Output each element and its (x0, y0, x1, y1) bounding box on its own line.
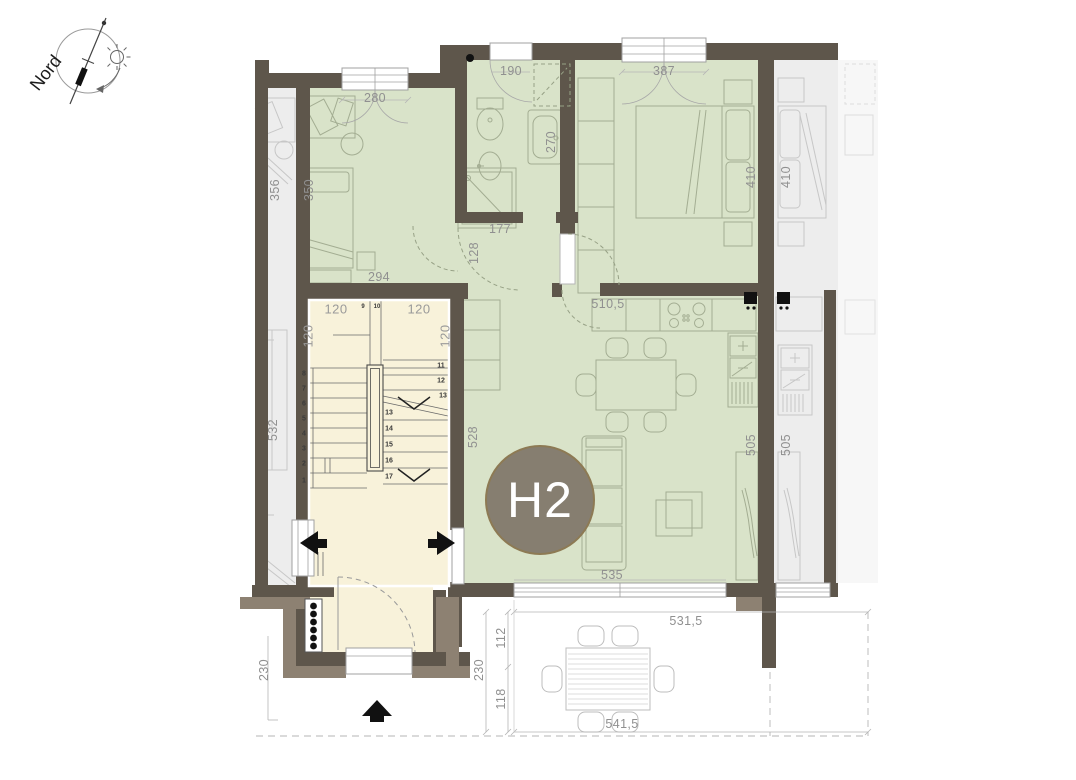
stair-step-number: 16 (385, 458, 393, 465)
stair-step-number: 8 (302, 371, 306, 378)
stove-vent-icon (744, 292, 757, 304)
dim-stair-side-left: 120 (302, 325, 315, 348)
window-neighbor-living (776, 583, 830, 597)
dim-bedroom2-window: 280 (364, 92, 386, 105)
entrance-threshold (346, 648, 412, 674)
stair-step-number: 2 (302, 461, 306, 468)
dim-bathroom-top: 190 (500, 65, 522, 78)
dim-terrace-lower: 118 (495, 688, 508, 709)
stair-step-number: 14 (385, 426, 393, 433)
door-bedroom1 (560, 234, 575, 284)
stair-step-number: 11 (437, 363, 444, 370)
dim-living-depth: 528 (467, 426, 480, 448)
dim-bedroom1-depth: 410 (745, 166, 758, 188)
dim-neighbor-left-depth: 356 (269, 179, 282, 201)
dim-neighbor-left-lower: 532 (267, 419, 280, 441)
dim-sideboard-wall: 505 (745, 434, 758, 456)
dim-stair-side-right: 120 (439, 325, 452, 348)
floor-plan-drawing (0, 0, 1076, 780)
stair-step-number: 15 (385, 442, 393, 449)
dim-bathroom-width: 177 (489, 223, 511, 236)
window-bathroom (490, 43, 532, 60)
stair-step-number: 12 (437, 378, 445, 385)
stair-step-number: 1 (302, 478, 306, 485)
dim-bedroom2-width: 294 (368, 271, 390, 284)
stair-step-number: 9 (361, 304, 364, 310)
entrance-direction-arrow-icon (362, 700, 392, 722)
dim-bedroom1-window: 387 (653, 65, 675, 78)
dim-stair-flight-left: 120 (325, 303, 348, 316)
stair-step-number: 3 (302, 446, 306, 453)
outdoor-chair-icon (578, 626, 604, 646)
dim-bathroom-wall: 270 (545, 131, 558, 153)
stair-step-number: 17 (385, 474, 393, 481)
dim-living-window: 535 (601, 569, 623, 582)
dim-terrace-top: 531,5 (669, 615, 702, 628)
dim-stair-flight-right: 120 (408, 303, 431, 316)
dim-entrance-depth: 230 (258, 659, 271, 681)
door-h2-entry (452, 528, 464, 584)
dim-bedroom2-depth: 350 (303, 179, 316, 201)
unit-badge: H2 (485, 445, 595, 555)
stair-step-number: 5 (302, 416, 306, 423)
stair-step-number: 6 (302, 401, 306, 408)
stair-step-number: 13 (385, 410, 393, 417)
sun-icon (108, 44, 131, 70)
dim-neighbor-sideboard-wall: 505 (780, 434, 793, 456)
vent-dot-icon (466, 54, 474, 62)
dim-living-width: 510,5 (591, 298, 624, 311)
north-compass-icon (56, 18, 131, 104)
dim-terrace-upper: 112 (495, 627, 508, 648)
stair-step-number: 10 (374, 304, 381, 310)
mailbox-icon (305, 599, 322, 652)
dim-terrace-total: 230 (473, 659, 486, 681)
dim-hall-width: 128 (468, 242, 481, 264)
dim-neighbor-right-depth: 410 (780, 166, 793, 188)
floor-plan-page: Nord H2 280 190 387 356 350 410 410 270 … (0, 0, 1076, 780)
stair-step-number: 13 (439, 393, 447, 400)
dim-terrace-bottom: 541,5 (605, 718, 638, 731)
stair-step-number: 4 (302, 431, 306, 438)
stair-step-number: 7 (302, 386, 306, 393)
